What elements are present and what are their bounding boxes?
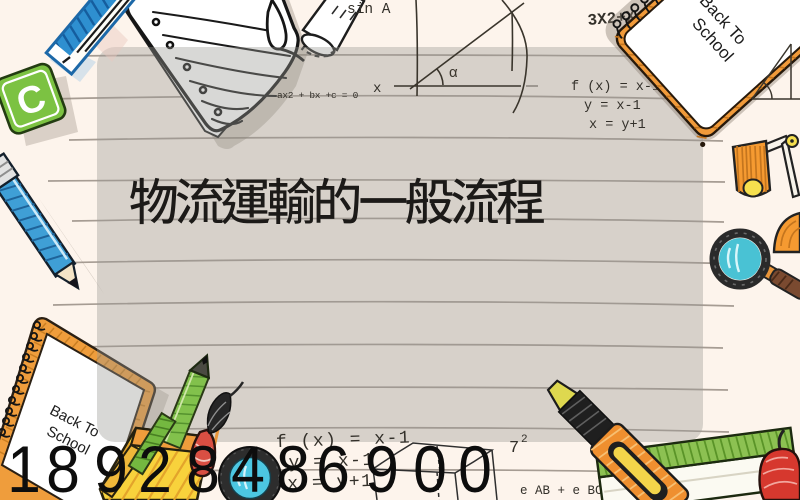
svg-text:sin A: sin A [347,2,391,18]
svg-text:8: 8 [276,434,310,500]
svg-text:2: 2 [521,434,528,446]
svg-text:9: 9 [94,434,128,500]
svg-text:6: 6 [316,434,350,500]
svg-text:2: 2 [138,434,172,500]
svg-text:9: 9 [365,434,399,500]
svg-text:4: 4 [231,434,265,500]
svg-text:0: 0 [458,434,492,500]
svg-text:y = x-1: y = x-1 [584,99,641,114]
svg-text:7: 7 [509,439,519,458]
svg-text:x = y+1: x = y+1 [589,118,646,133]
svg-text:0: 0 [413,434,447,500]
svg-text:8: 8 [186,434,220,500]
svg-text:x: x [373,81,381,97]
svg-text:8: 8 [46,434,80,500]
svg-text:α: α [449,64,458,81]
svg-text:ax2 + bx +c = 0: ax2 + bx +c = 0 [277,90,359,101]
svg-text:1: 1 [7,434,41,500]
